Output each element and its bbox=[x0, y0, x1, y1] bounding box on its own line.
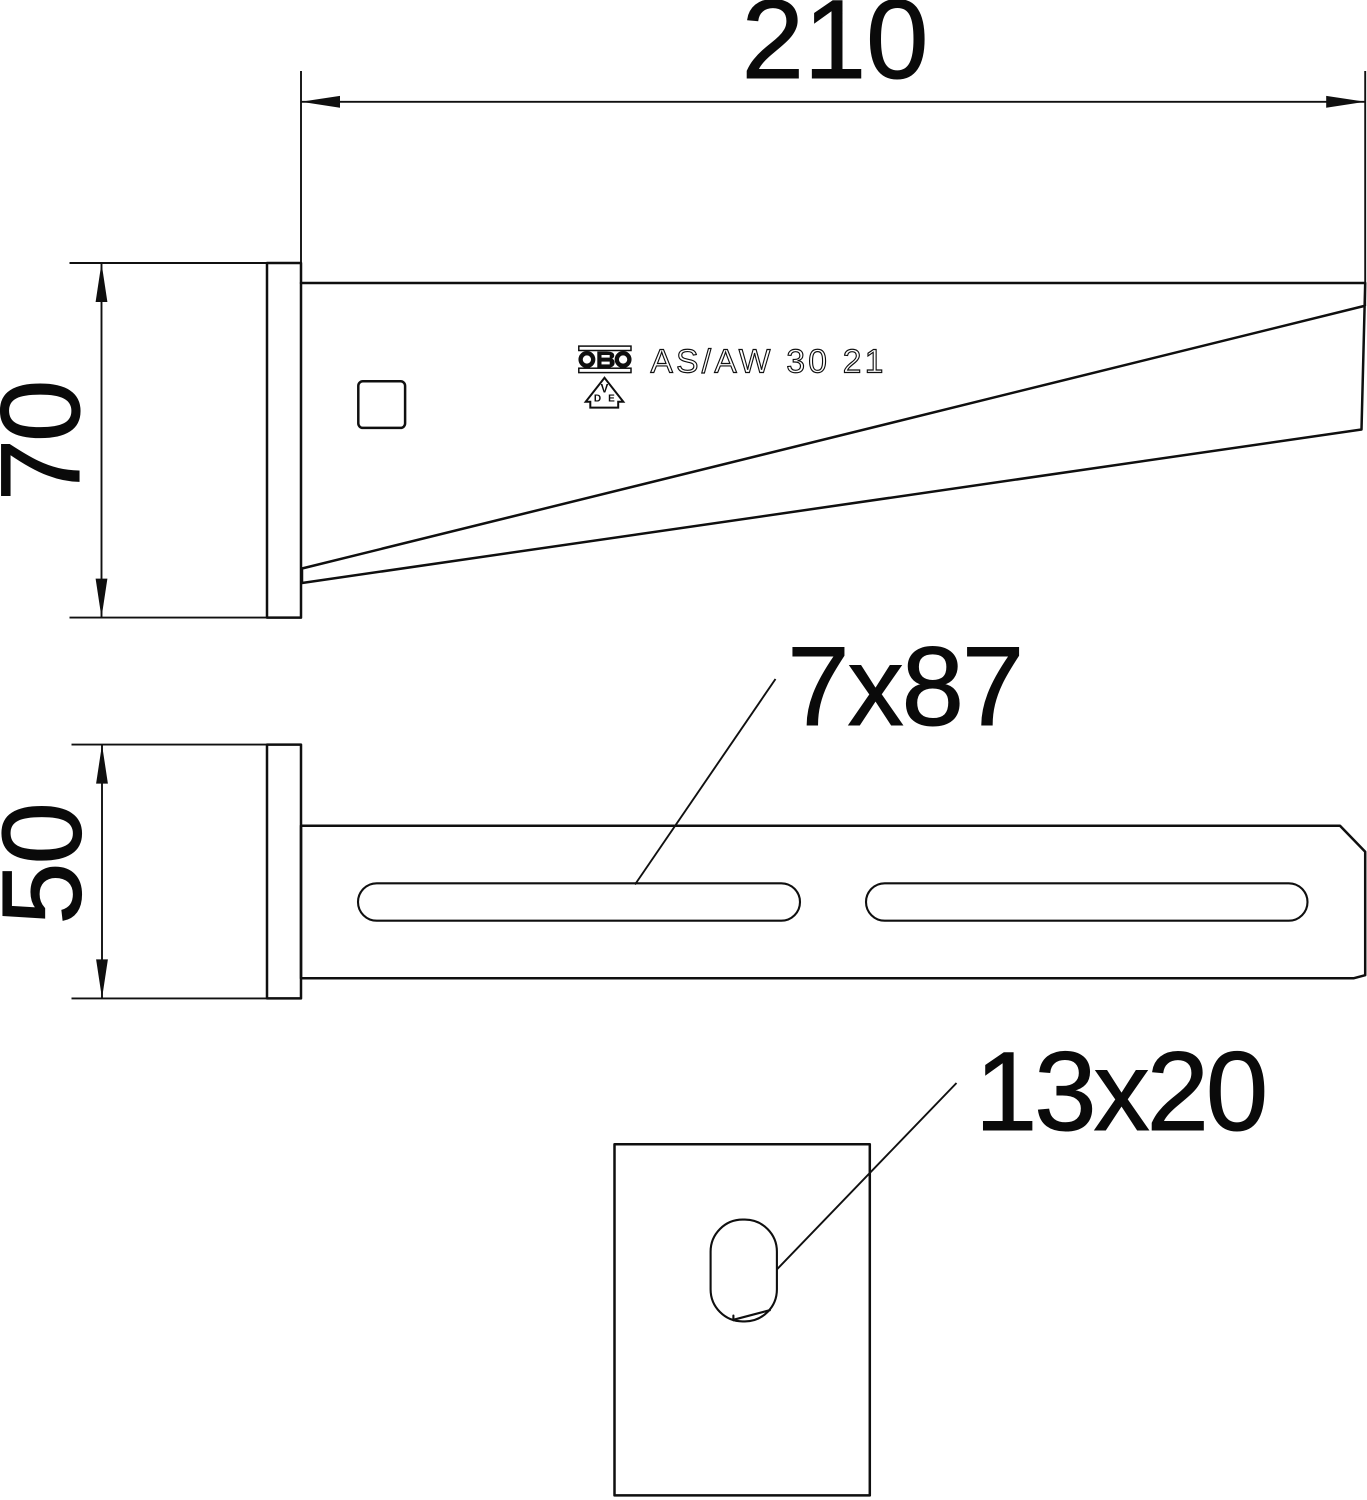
svg-text:E: E bbox=[608, 394, 615, 405]
svg-text:210: 210 bbox=[742, 0, 929, 102]
svg-text:50: 50 bbox=[0, 804, 105, 925]
svg-text:7x87: 7x87 bbox=[787, 624, 1022, 749]
svg-text:70: 70 bbox=[0, 383, 103, 502]
svg-text:D: D bbox=[594, 394, 601, 405]
svg-text:13x20: 13x20 bbox=[975, 1029, 1265, 1154]
svg-text:AS/AW 30 21: AS/AW 30 21 bbox=[651, 344, 887, 381]
